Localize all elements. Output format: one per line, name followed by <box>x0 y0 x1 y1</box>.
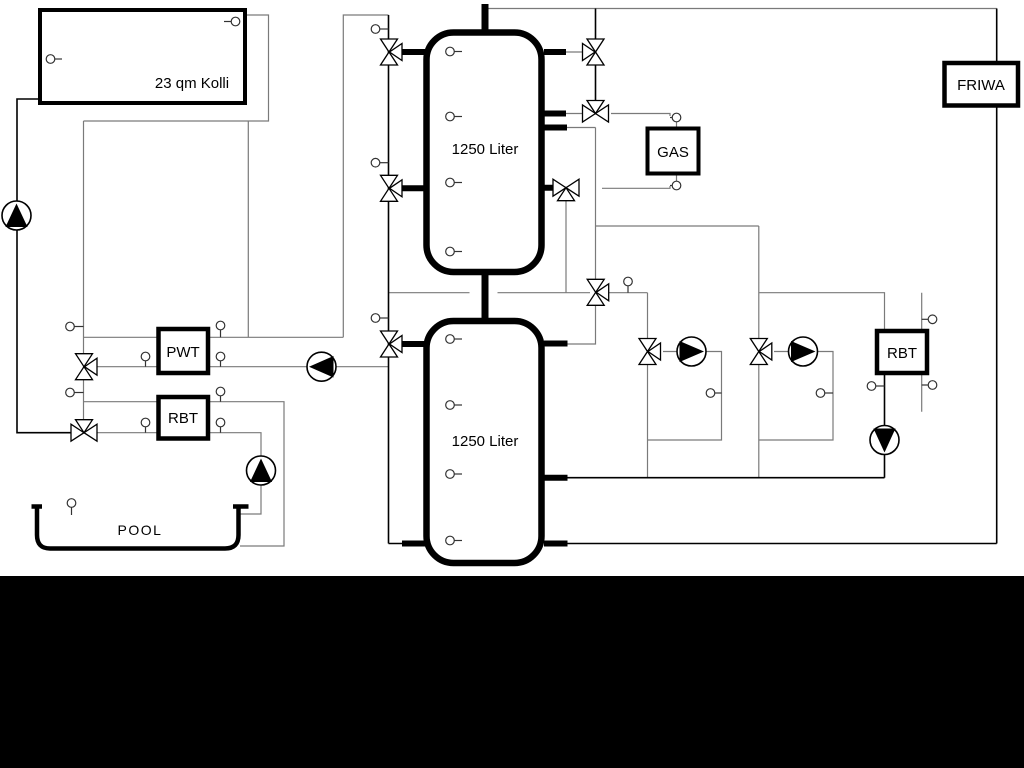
valve-tank1-left-top <box>381 39 403 65</box>
valve-rbt-supply <box>71 420 97 442</box>
schematic-screen: 1250 Liter 1250 Liter 23 qm Kolli GAS FR… <box>0 0 1024 768</box>
sensor-pwt-right-top-icon <box>216 321 225 337</box>
gas-label: GAS <box>657 144 689 161</box>
tank-left-riser-pipe <box>389 15 405 544</box>
rbt-right-box: RBT <box>877 331 927 373</box>
solar-supply-pipe <box>17 99 72 433</box>
sensor-valve1-icon <box>371 25 388 34</box>
valve-tank1-left-bottom <box>381 175 403 201</box>
pwt-heat-exchanger-box: PWT <box>159 329 209 373</box>
tank-upper-label: 1250 Liter <box>452 141 519 158</box>
letterbox-bar <box>0 576 1024 768</box>
pump-circuit2 <box>789 337 818 366</box>
rbt-right-label: RBT <box>887 345 917 362</box>
pump-circuit1 <box>677 337 706 366</box>
pool-basin: POOL <box>32 507 249 549</box>
pump-pwt <box>307 352 336 381</box>
pwt-label: PWT <box>166 344 199 361</box>
sensor-rbt-right-top-icon <box>216 387 225 402</box>
pool-label: POOL <box>118 522 163 538</box>
sensor-valve2-icon <box>371 158 388 167</box>
sensor-pwt-right-bottom-icon <box>216 352 225 367</box>
sensor-pwt-left-bottom-icon <box>141 352 150 367</box>
sensor-rbt-left-bottom-icon <box>141 418 150 433</box>
sensor-circuit1-return-icon <box>706 389 721 398</box>
valve-pwt-supply <box>76 354 98 380</box>
sensor-circuit2-return-icon <box>816 389 833 398</box>
heating-circuit-pipes <box>485 9 997 441</box>
gas-boiler-box: GAS <box>648 129 699 174</box>
sensor-solar-return-bottom-icon <box>66 388 84 397</box>
valve-circuit1-mixer <box>639 339 661 365</box>
valve-gas-return <box>553 179 579 201</box>
pump-solar <box>2 201 31 230</box>
sensor-rbt-right-box-top-icon <box>922 315 937 324</box>
sensor-rbt-right-bottom-icon <box>216 418 225 433</box>
rbt-left-label: RBT <box>168 410 198 427</box>
valve-tank1-right-top <box>583 39 605 65</box>
sensor-pool-icon <box>67 499 76 515</box>
valve-circuit2-mixer <box>750 339 772 365</box>
sensor-gas-bottom-icon <box>670 181 681 190</box>
tank-lower-label: 1250 Liter <box>452 433 519 450</box>
friwa-label: FRIWA <box>957 77 1005 94</box>
valve-tank2-left <box>381 331 403 357</box>
sensor-heating-header-icon <box>624 277 633 293</box>
valve-heating-header <box>587 279 609 305</box>
pump-pool <box>247 456 276 485</box>
sensor-valve3-icon <box>371 314 388 323</box>
rbt-left-box: RBT <box>159 397 209 439</box>
pump-rbt-right <box>870 426 899 455</box>
collector-box: 23 qm Kolli <box>40 10 245 103</box>
heating-supply-return-pipes <box>567 9 997 544</box>
collector-label: 23 qm Kolli <box>155 75 229 92</box>
sensor-solar-return-top-icon <box>66 322 84 331</box>
valve-gas-supply <box>583 101 609 123</box>
sensor-gas-top-icon <box>670 113 681 122</box>
sensor-rbt-right-pump-icon <box>867 382 884 391</box>
heating-schematic-diagram: 1250 Liter 1250 Liter 23 qm Kolli GAS FR… <box>0 0 1024 768</box>
friwa-box: FRIWA <box>945 63 1019 106</box>
sensor-rbt-right-box-bottom-icon <box>922 381 937 390</box>
